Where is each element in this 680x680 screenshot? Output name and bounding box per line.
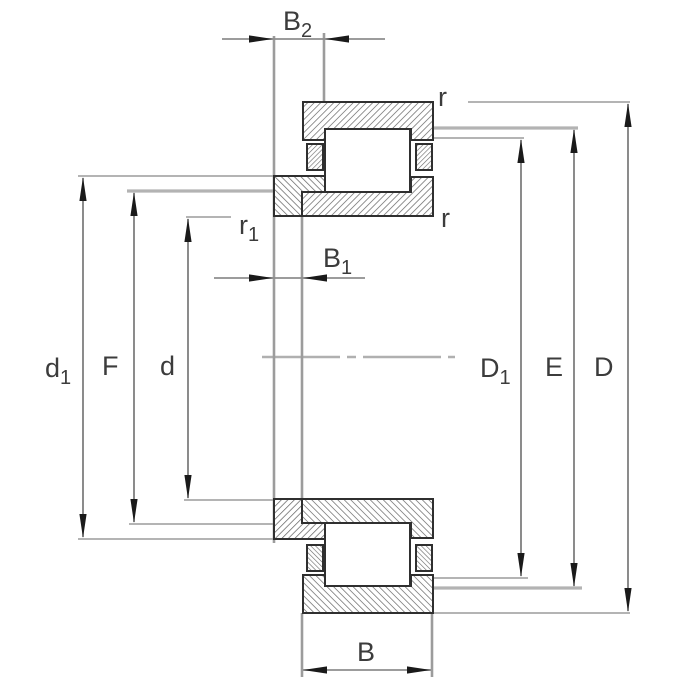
label-d1-sub: 1 (60, 367, 71, 389)
label-D1: D1 (480, 353, 511, 389)
label-B: B (357, 637, 375, 667)
label-r1: r1 (239, 210, 259, 246)
label-D1-sub: 1 (500, 367, 511, 389)
label-B1-sub: 1 (341, 257, 352, 279)
cage-top-right (416, 144, 432, 170)
label-d1: d1 (45, 353, 71, 389)
arrowhead-d-up (184, 218, 191, 242)
arrowhead-B-right (407, 666, 431, 673)
bearing-top-section (274, 102, 433, 216)
bearing-bottom-section (274, 499, 433, 613)
arrowhead-F-down (130, 499, 137, 523)
dim-E (570, 129, 577, 587)
label-B2-base: B (283, 6, 301, 36)
label-r1-sub: 1 (248, 224, 259, 246)
label-d1-base: d (45, 353, 60, 383)
label-d-base: d (160, 351, 175, 381)
dim-F (130, 192, 137, 523)
label-d: d (160, 351, 175, 381)
label-B2: B2 (283, 6, 312, 42)
arrowhead-B2-left (249, 35, 273, 42)
bearing-technical-drawing: B2 B1 B d1 F d D1 E D r r r1 (0, 0, 680, 680)
arrowhead-d1-down (79, 514, 86, 538)
drawing-canvas: B2 B1 B d1 F d D1 E D r r r1 (0, 0, 680, 680)
arrowhead-B2-right (325, 35, 349, 42)
label-r-top: r (438, 82, 447, 112)
dim-B (303, 666, 431, 673)
label-r-top-base: r (438, 82, 447, 112)
arrowhead-d1-up (79, 177, 86, 201)
arrowhead-B-left (303, 666, 327, 673)
label-D-base: D (594, 352, 614, 382)
label-B-base: B (357, 637, 375, 667)
roller-top (325, 129, 410, 192)
label-r1-base: r (239, 210, 248, 240)
cage-bottom-right (416, 545, 432, 571)
label-F-base: F (102, 351, 119, 381)
arrowhead-D-down (624, 588, 631, 612)
label-r-mid: r (441, 203, 450, 233)
label-F: F (102, 351, 119, 381)
label-E: E (545, 352, 563, 382)
dim-d (184, 218, 191, 499)
label-E-base: E (545, 352, 563, 382)
label-B2-sub: 2 (301, 20, 312, 42)
arrowhead-d-down (184, 475, 191, 499)
arrowhead-B1-right (303, 274, 327, 281)
arrowhead-F-up (130, 192, 137, 216)
label-D1-base: D (480, 353, 500, 383)
label-r-mid-base: r (441, 203, 450, 233)
label-B1-base: B (323, 243, 341, 273)
label-D: D (594, 352, 614, 382)
arrowhead-D-up (624, 103, 631, 127)
arrowhead-E-down (570, 563, 577, 587)
arrowhead-B1-left (249, 274, 273, 281)
arrowhead-D1-up (517, 139, 524, 163)
cage-bottom-left (307, 545, 323, 571)
arrowhead-E-up (570, 129, 577, 153)
roller-bottom (325, 523, 410, 586)
dim-D1 (517, 139, 524, 577)
arrowhead-D1-down (517, 553, 524, 577)
dim-D (624, 103, 631, 612)
label-B1: B1 (323, 243, 352, 279)
cage-top-left (307, 144, 323, 170)
dim-d1 (79, 177, 86, 538)
